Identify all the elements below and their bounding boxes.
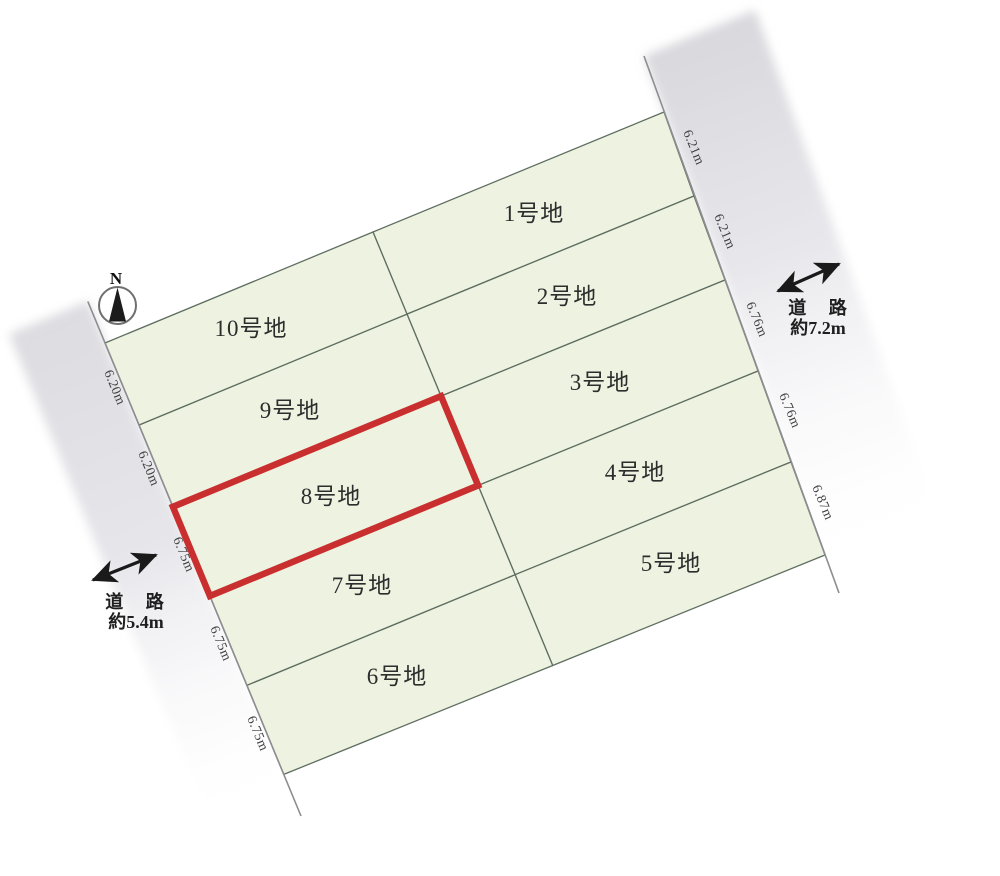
north-compass: N bbox=[99, 269, 136, 324]
lot-10-label: 10号地 bbox=[215, 316, 288, 341]
road-name-right: 道 路 bbox=[788, 297, 856, 318]
north-label: N bbox=[110, 269, 123, 288]
lot-7-label: 7号地 bbox=[332, 573, 393, 598]
lot-9-label: 9号地 bbox=[260, 398, 321, 423]
lot-1-label: 1号地 bbox=[504, 201, 565, 226]
lot-2-label: 2号地 bbox=[537, 284, 598, 309]
road-width-right: 約7.2m bbox=[790, 317, 846, 338]
lot-5-label: 5号地 bbox=[641, 551, 702, 576]
lot-3-label: 3号地 bbox=[570, 370, 631, 395]
lot-8-label: 8号地 bbox=[301, 484, 362, 509]
lot-4-label: 4号地 bbox=[605, 460, 666, 485]
lot-6-label: 6号地 bbox=[367, 664, 428, 689]
road-width-left: 約5.4m bbox=[108, 611, 164, 632]
road-name-left: 道 路 bbox=[105, 591, 173, 612]
plot-map: 1号地 6.21m 2号地 6.21m 3号地 6.76m 4号地 6.76m … bbox=[0, 0, 1000, 876]
